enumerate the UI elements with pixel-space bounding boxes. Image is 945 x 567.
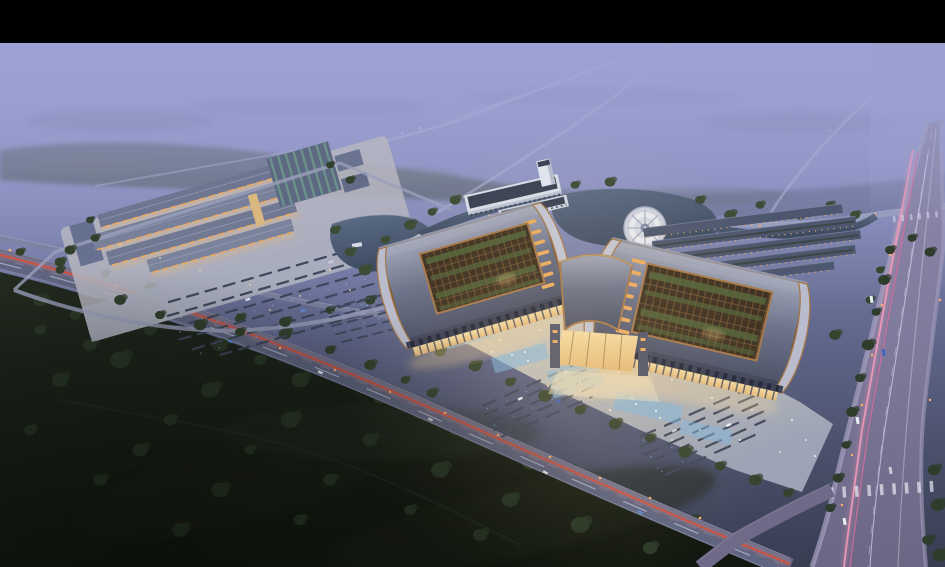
rendering-canvas: Aerial dusk architectural rendering of a… [0,0,945,567]
boulevard-mist [870,43,945,233]
vignette [0,270,640,567]
letterbox-bar [0,0,945,43]
